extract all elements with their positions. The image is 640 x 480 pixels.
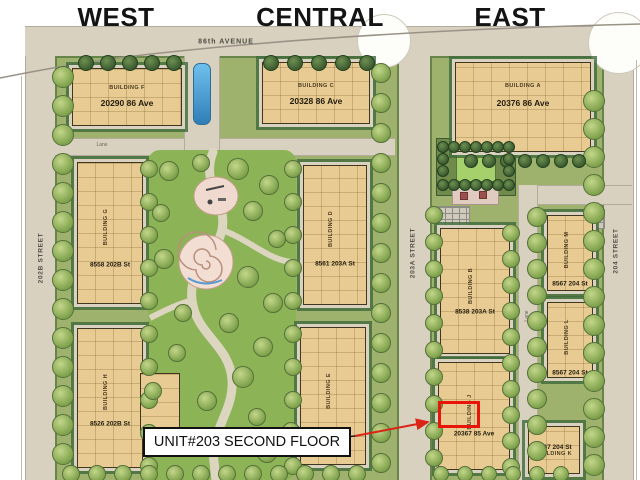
tree <box>425 206 443 224</box>
tree <box>502 224 520 242</box>
tree <box>348 465 366 480</box>
tree <box>52 124 74 146</box>
tree <box>527 415 547 435</box>
building-b-address: 8538 203A St <box>455 309 495 316</box>
building-b: BUILDING B8538 203A St <box>440 228 510 354</box>
building-b-name: BUILDING B <box>468 268 474 304</box>
label-lane-west: Lane <box>96 142 107 148</box>
tree <box>502 380 520 398</box>
tree <box>284 160 302 178</box>
tree <box>154 249 174 269</box>
tree <box>52 443 74 465</box>
building-g: BUILDING G8558 202B St <box>77 162 143 304</box>
tree <box>237 266 259 288</box>
tree <box>263 55 279 71</box>
tree <box>583 146 605 168</box>
tree <box>583 202 605 224</box>
label-lane-east: Lane <box>524 310 530 321</box>
tree <box>311 55 327 71</box>
tree <box>166 55 182 71</box>
tree <box>371 183 391 203</box>
unit-highlight-rect <box>438 401 480 428</box>
tree <box>527 259 547 279</box>
unit-annotation-label: UNIT#203 SECOND FLOOR <box>154 434 340 450</box>
tree <box>371 93 391 113</box>
tree <box>335 55 351 71</box>
building-f-address: 20290 86 Ave <box>101 98 154 108</box>
tree <box>284 391 302 409</box>
tree <box>371 243 391 263</box>
label-204-street: 204 STREET <box>613 228 620 273</box>
building-h-name: BUILDING H <box>103 374 109 410</box>
tree <box>259 175 279 195</box>
tree <box>371 423 391 443</box>
tree <box>218 465 236 480</box>
building-d: BUILDING D8561 203A St <box>303 165 367 305</box>
tree <box>371 123 391 143</box>
tree <box>527 233 547 253</box>
tree <box>244 465 262 480</box>
tree <box>144 55 160 71</box>
tree <box>287 55 303 71</box>
tree <box>296 465 314 480</box>
tree <box>371 453 391 473</box>
tree <box>502 354 520 372</box>
tree <box>192 465 210 480</box>
building-c-address: 20328 86 Ave <box>290 96 343 106</box>
tree <box>554 154 568 168</box>
tree <box>505 466 521 480</box>
building-d-name: BUILDING D <box>328 211 334 247</box>
label-86th-avenue: 86th AVENUE <box>198 39 254 46</box>
tree <box>168 344 186 362</box>
tree <box>140 292 158 310</box>
tree <box>52 356 74 378</box>
tree <box>122 55 138 71</box>
tree <box>152 204 170 222</box>
building-l-address: 8567 204 St <box>552 369 587 376</box>
building-m: BUILDING M8567 204 St <box>547 215 593 291</box>
tree <box>197 391 217 411</box>
unit-annotation-box: UNIT#203 SECOND FLOOR <box>143 427 351 457</box>
tree <box>284 292 302 310</box>
section-title-west: WEST <box>77 2 154 33</box>
tree <box>583 258 605 280</box>
tree <box>503 141 515 153</box>
tree <box>52 153 74 175</box>
tree <box>62 465 80 480</box>
tree <box>503 153 515 165</box>
tree <box>78 55 94 71</box>
building-a-name: BUILDING A <box>505 83 541 89</box>
tree <box>192 154 210 172</box>
tree <box>100 55 116 71</box>
tree <box>52 95 74 117</box>
tree <box>503 179 515 191</box>
tree <box>140 226 158 244</box>
tree <box>502 406 520 424</box>
building-h: BUILDING H8526 202B St <box>77 328 143 468</box>
tree <box>88 465 106 480</box>
tree <box>583 286 605 308</box>
tree <box>52 414 74 436</box>
tree <box>583 370 605 392</box>
building-m-address: 8567 204 St <box>552 281 587 288</box>
building-f-name: BUILDING F <box>109 85 144 91</box>
building-j-address: 20367 85 Ave <box>454 431 494 438</box>
building-g-address: 8558 202B St <box>90 262 130 269</box>
tree <box>359 55 375 71</box>
tree <box>232 366 254 388</box>
site-plan-canvas: WEST CENTRAL EAST 86th AVENUE 202B STREE… <box>0 0 640 480</box>
tree <box>140 465 158 480</box>
tree <box>52 269 74 291</box>
building-f: BUILDING F20290 86 Ave <box>72 68 182 126</box>
tree <box>174 304 192 322</box>
tree <box>253 337 273 357</box>
tree <box>553 466 569 480</box>
plan-left-edge <box>21 76 22 480</box>
tree <box>527 389 547 409</box>
building-c-name: BUILDING C <box>298 83 334 89</box>
tree <box>284 325 302 343</box>
tree <box>425 260 443 278</box>
tree <box>527 363 547 383</box>
tree <box>263 293 283 313</box>
tree <box>583 342 605 364</box>
tree <box>572 154 586 168</box>
tree <box>284 193 302 211</box>
tree <box>284 358 302 376</box>
tree <box>583 230 605 252</box>
tree <box>536 154 550 168</box>
tree <box>583 174 605 196</box>
building-c: BUILDING C20328 86 Ave <box>262 62 370 124</box>
tree <box>583 90 605 112</box>
tree <box>52 327 74 349</box>
tree <box>527 311 547 331</box>
tree <box>518 154 532 168</box>
tree <box>284 226 302 244</box>
tree <box>425 449 443 467</box>
tree <box>482 154 496 168</box>
building-e-name: BUILDING E <box>326 373 332 409</box>
tree <box>268 230 286 248</box>
tree <box>52 240 74 262</box>
water-feature <box>193 63 211 125</box>
tree <box>502 276 520 294</box>
tree <box>583 454 605 476</box>
tree <box>248 408 266 426</box>
tree <box>140 325 158 343</box>
tree <box>371 273 391 293</box>
tree <box>464 154 478 168</box>
tree <box>502 432 520 450</box>
tree <box>437 165 449 177</box>
tree <box>481 466 497 480</box>
tree <box>243 201 263 221</box>
label-202b-street: 202B STREET <box>38 233 45 284</box>
tree <box>371 303 391 323</box>
tree <box>425 233 443 251</box>
tree <box>371 363 391 383</box>
section-title-east: EAST <box>474 2 545 33</box>
tree <box>159 161 179 181</box>
building-m-name: BUILDING M <box>564 232 570 269</box>
tree <box>270 465 288 480</box>
section-title-central: CENTRAL <box>256 2 384 33</box>
tree <box>425 341 443 359</box>
tree <box>144 382 162 400</box>
tree <box>527 441 547 461</box>
building-h-address: 8526 202B St <box>90 421 130 428</box>
tree <box>52 182 74 204</box>
building-a-address: 20376 86 Ave <box>497 98 550 108</box>
tree <box>371 393 391 413</box>
tree <box>114 465 132 480</box>
tree <box>425 287 443 305</box>
tree <box>583 118 605 140</box>
building-g-name: BUILDING G <box>103 209 109 245</box>
tree <box>527 207 547 227</box>
tree <box>457 466 473 480</box>
tree <box>371 153 391 173</box>
tree <box>583 314 605 336</box>
tree <box>433 466 449 480</box>
building-l-name: BUILDING L <box>564 319 570 354</box>
tree <box>583 398 605 420</box>
tree <box>583 426 605 448</box>
tree <box>166 465 184 480</box>
tree <box>502 328 520 346</box>
tree <box>52 385 74 407</box>
building-l: BUILDING L8567 204 St <box>547 302 593 378</box>
tree <box>371 333 391 353</box>
tree <box>502 250 520 268</box>
tree <box>425 314 443 332</box>
tree <box>322 465 340 480</box>
tree <box>529 466 545 480</box>
tree <box>527 285 547 305</box>
building-a: BUILDING A20376 86 Ave <box>455 62 591 152</box>
tree <box>227 158 249 180</box>
tree <box>437 153 449 165</box>
tree <box>527 337 547 357</box>
building-d-address: 8561 203A St <box>315 260 355 267</box>
tree <box>284 259 302 277</box>
tree <box>52 211 74 233</box>
tree <box>52 66 74 88</box>
tree <box>371 213 391 233</box>
tree <box>52 298 74 320</box>
plan-right-edge <box>636 60 637 480</box>
tree <box>219 313 239 333</box>
tree <box>503 165 515 177</box>
tree <box>502 302 520 320</box>
tree <box>140 358 158 376</box>
label-203a-street: 203A STREET <box>410 228 417 278</box>
tree <box>425 368 443 386</box>
tree <box>140 160 158 178</box>
